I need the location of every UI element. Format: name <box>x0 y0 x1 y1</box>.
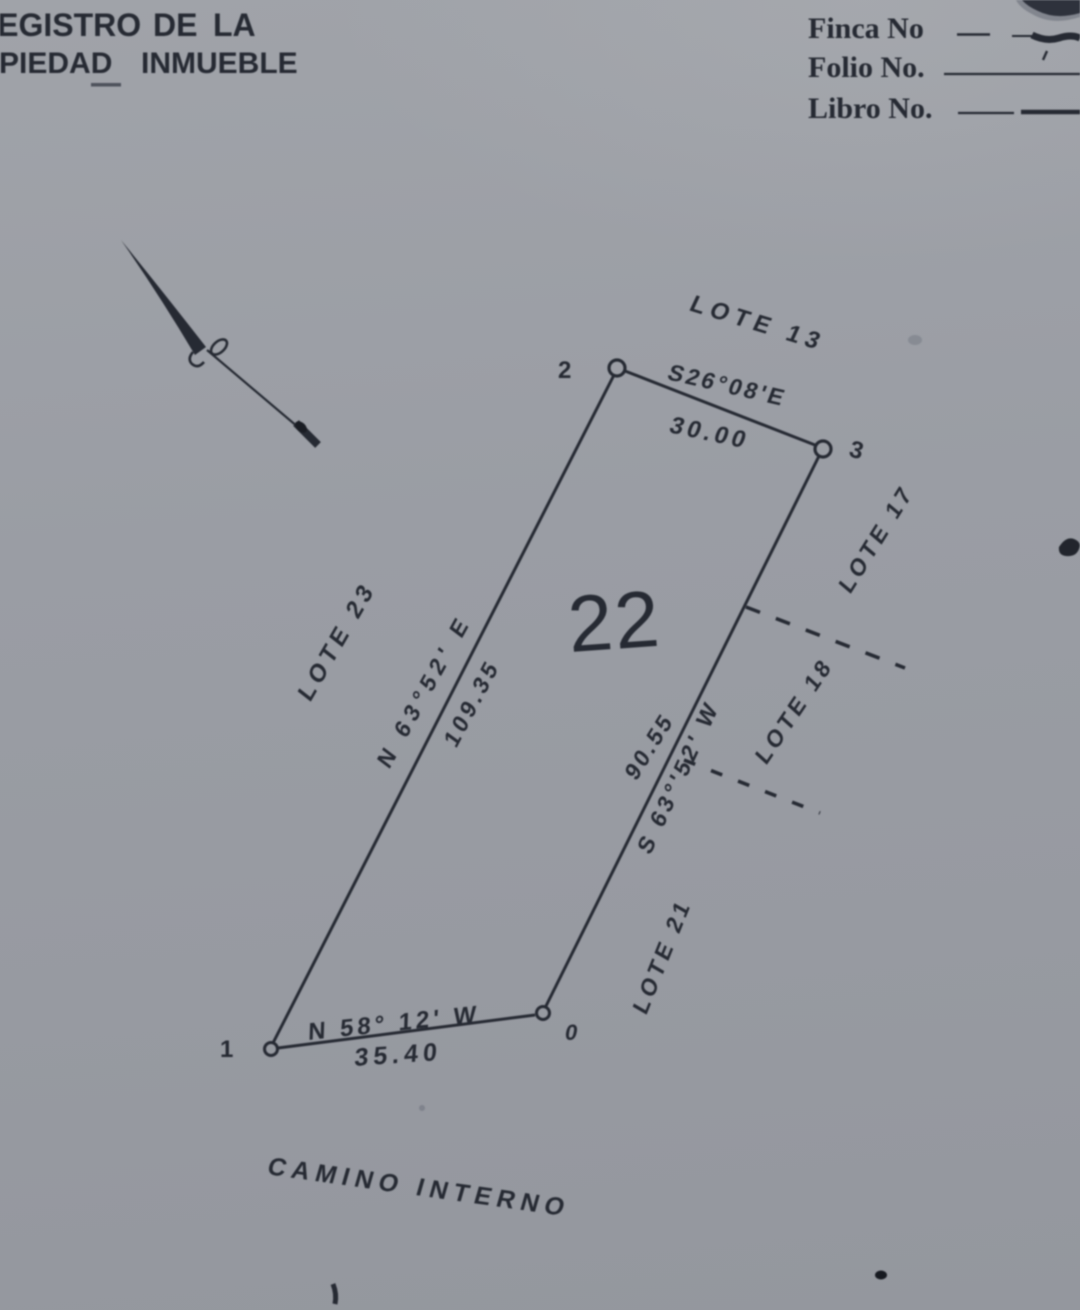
svg-text:S 63°'52' W: S 63°'52' W <box>632 695 724 859</box>
svg-text:CAMINO INTERNO: CAMINO INTERNO <box>264 1153 574 1222</box>
svg-text:1: 1 <box>220 1036 233 1063</box>
svg-text:35.40: 35.40 <box>354 1038 443 1072</box>
svg-text:LOTE 21: LOTE 21 <box>628 893 696 1019</box>
svg-text:Libro No.: Libro No. <box>808 92 932 125</box>
svg-text:REGISTRO: REGISTRO <box>0 7 141 43</box>
svg-text:3: 3 <box>846 436 866 466</box>
svg-text:Folio No.: Folio No. <box>808 51 925 84</box>
svg-text:S26°08'E: S26°08'E <box>664 359 791 410</box>
svg-text:22: 22 <box>565 574 664 669</box>
svg-text:LOTE 23: LOTE 23 <box>293 575 381 706</box>
svg-text:LOTE 18: LOTE 18 <box>750 651 837 769</box>
svg-text:30.00: 30.00 <box>666 412 754 454</box>
svg-text:LOTE 17: LOTE 17 <box>834 479 918 599</box>
svg-text:DE: DE <box>153 7 197 43</box>
svg-text:INMUEBLE: INMUEBLE <box>141 47 298 80</box>
svg-text:Finca No: Finca No <box>808 12 924 45</box>
svg-text:LA: LA <box>213 7 256 43</box>
svg-text:0: 0 <box>565 1020 578 1045</box>
svg-text:PROPIEDAD: PROPIEDAD <box>0 47 112 80</box>
svg-text:LOTE 13: LOTE 13 <box>685 291 830 356</box>
svg-text:2: 2 <box>558 357 571 384</box>
svg-text:N 58° 12' W: N 58° 12' W <box>308 1001 481 1046</box>
